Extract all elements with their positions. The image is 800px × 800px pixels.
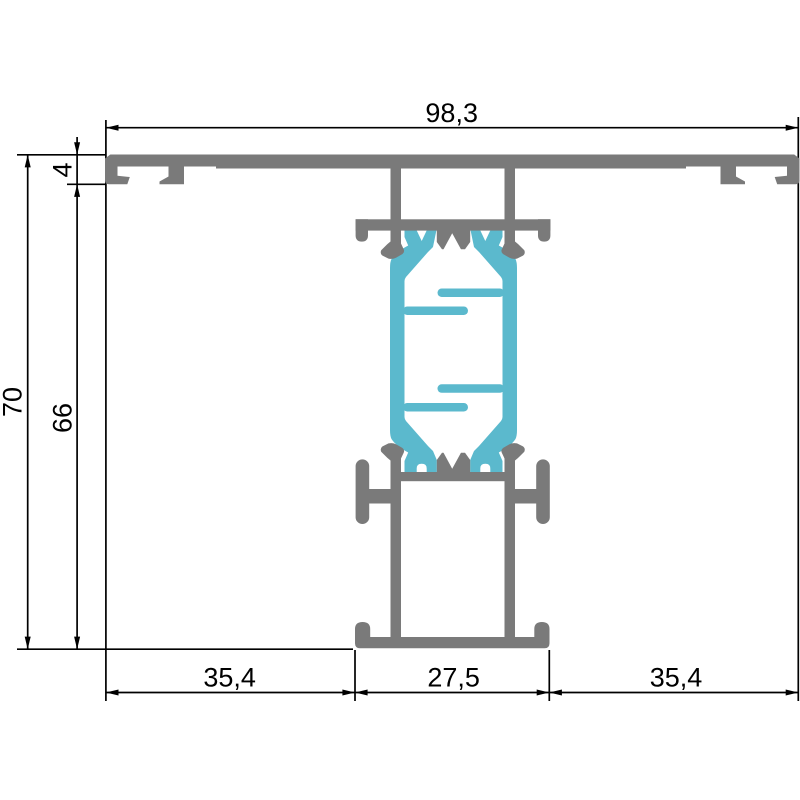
svg-text:35,4: 35,4 xyxy=(203,663,256,693)
svg-text:27,5: 27,5 xyxy=(427,663,480,693)
svg-text:4: 4 xyxy=(48,162,78,177)
svg-text:98,3: 98,3 xyxy=(425,98,478,128)
svg-text:66: 66 xyxy=(48,403,78,433)
svg-text:70: 70 xyxy=(0,387,28,417)
svg-text:35,4: 35,4 xyxy=(650,663,703,693)
